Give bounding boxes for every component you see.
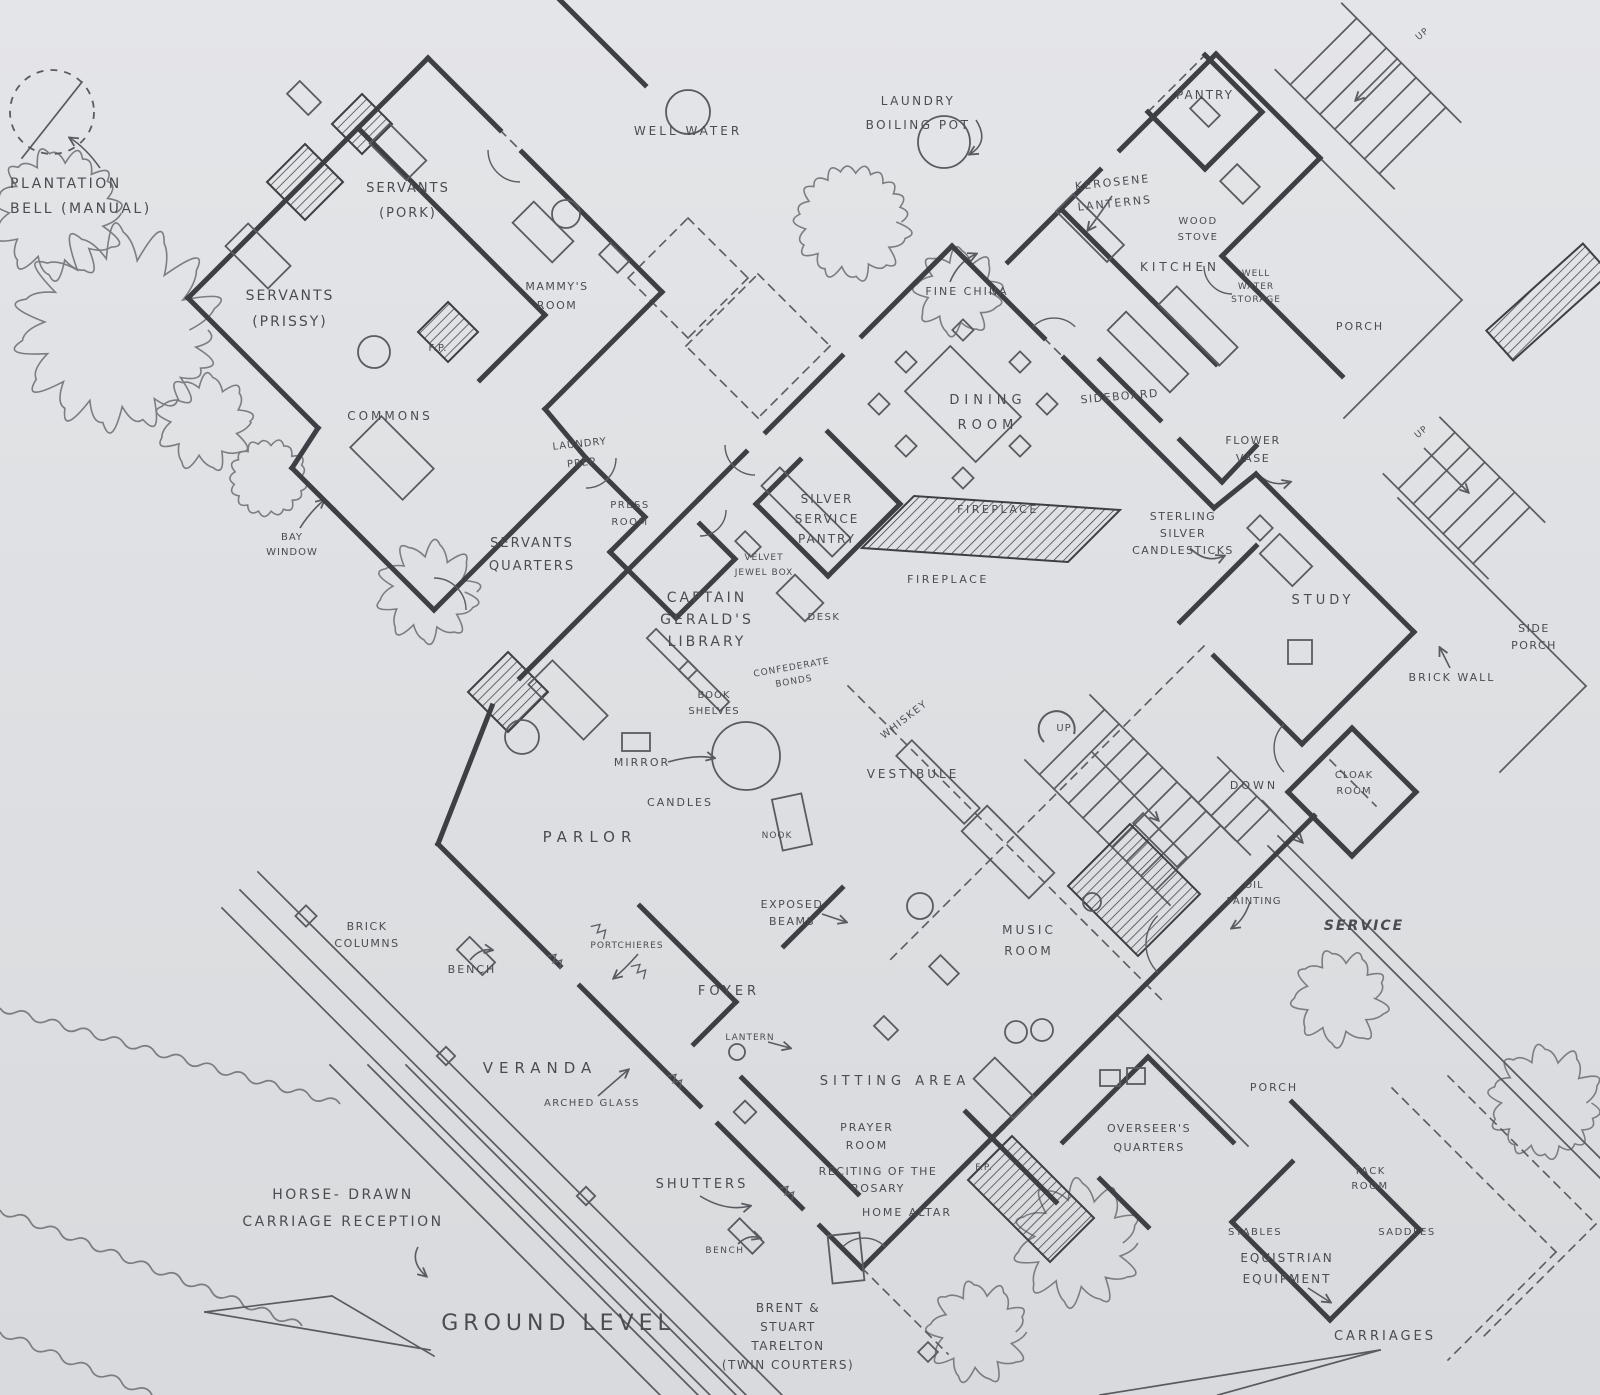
bench-south-label: BENCH bbox=[705, 1246, 744, 1256]
floor-plan-page: PLANTATIONBELL (MANUAL)SERVANTS(PORK)SER… bbox=[0, 0, 1600, 1395]
well-water-label: WELL WATER bbox=[634, 124, 742, 138]
fp-servants-label: F.P. bbox=[429, 343, 448, 354]
captain-geralds-library-label: CAPTAINGERALD'SLIBRARY bbox=[660, 590, 754, 650]
service-label: SERVICE bbox=[1324, 918, 1404, 934]
home-altar-label: HOME ALTAR bbox=[862, 1206, 952, 1219]
fine-china-label: FINE CHINA bbox=[925, 285, 1008, 298]
lantern-label: LANTERN bbox=[725, 1033, 774, 1043]
brick-wall-label: BRICK WALL bbox=[1409, 671, 1496, 684]
foyer-label: FOYER bbox=[698, 984, 760, 999]
carriages-label: CARRIAGES bbox=[1334, 1329, 1436, 1344]
nook-label: NOOK bbox=[762, 831, 793, 841]
commons-label: COMMONS bbox=[347, 409, 433, 423]
fireplace-lower-label: FIREPLACE bbox=[907, 573, 989, 586]
candles-label: CANDLES bbox=[647, 796, 713, 809]
down-center-label: DOWN bbox=[1230, 779, 1278, 792]
pantry-label: PANTRY bbox=[1176, 88, 1234, 102]
fp-prayer-label: F.P. bbox=[975, 1163, 992, 1173]
saddles-label: SADDLES bbox=[1378, 1227, 1436, 1238]
vestibule-label: VESTIBULE bbox=[867, 767, 960, 781]
silver-service-pantry-label: SILVERSERVICEPANTRY bbox=[795, 492, 860, 546]
bench-veranda-label: BENCH bbox=[448, 963, 497, 976]
fireplace-upper-label: FIREPLACE bbox=[957, 503, 1039, 516]
desk-label: DESK bbox=[808, 612, 841, 623]
study-label: STUDY bbox=[1292, 593, 1355, 608]
portchieres-label: PORTCHIERES bbox=[590, 941, 663, 951]
arched-glass-label: ARCHED GLASS bbox=[544, 1098, 640, 1109]
kitchen-label: KITCHEN bbox=[1140, 260, 1220, 274]
ground-level-label: GROUND LEVEL bbox=[441, 1311, 675, 1336]
up-center-label: UP bbox=[1056, 723, 1071, 734]
veranda-label: VERANDA bbox=[483, 1059, 598, 1077]
stables-label: STABLES bbox=[1228, 1227, 1282, 1238]
mirror-label: MIRROR bbox=[614, 756, 670, 769]
porch-top-label: PORCH bbox=[1336, 320, 1384, 333]
sitting-area-label: SITTING AREA bbox=[820, 1074, 971, 1089]
shutters-label: SHUTTERS bbox=[656, 1177, 749, 1192]
floor-plan-canvas: PLANTATIONBELL (MANUAL)SERVANTS(PORK)SER… bbox=[0, 0, 1600, 1395]
porch-south-label: PORCH bbox=[1250, 1081, 1298, 1094]
parlor-label: PARLOR bbox=[543, 828, 638, 846]
